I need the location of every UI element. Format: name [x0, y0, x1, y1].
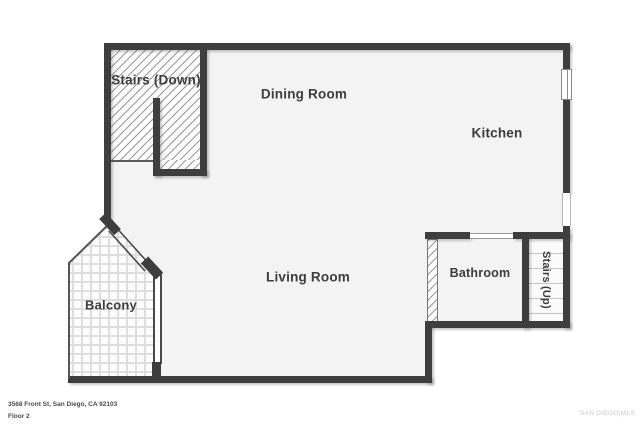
mls-watermark: SAN DIEGO|MLS: [580, 410, 635, 417]
right-wall-opening: [562, 193, 571, 226]
balcony-wall-post: [152, 362, 161, 378]
stairs-down-edge-line: [111, 160, 153, 162]
floor-plan: Stairs (Down) Dining Room Kitchen Living…: [0, 0, 640, 427]
wall-right-lower: [563, 226, 570, 328]
wall-living-notch: [425, 321, 432, 383]
balcony-label: Balcony: [85, 298, 137, 313]
wall-top: [104, 43, 570, 50]
wall-right-middle: [563, 97, 570, 193]
wall-stairs-down-inner: [153, 98, 160, 176]
address-text: 3568 Front St, San Diego, CA 92103: [8, 401, 117, 408]
wall-stairs-up-left: [522, 232, 529, 328]
balcony-door-window: [153, 272, 162, 364]
window-mullion: [567, 70, 568, 99]
wall-bathroom-bottom: [425, 321, 570, 328]
kitchen-label: Kitchen: [472, 126, 523, 141]
stairs-up-label: Stairs (Up): [540, 251, 552, 309]
kitchen-window: [561, 69, 572, 100]
wall-left: [104, 43, 111, 224]
bathroom-window: [470, 233, 513, 239]
wall-bathroom-top-left: [425, 232, 470, 239]
stairs-up-label-box: Stairs (Up): [529, 239, 563, 321]
wall-right-upper: [563, 43, 570, 70]
stairs-down-label: Stairs (Down): [111, 73, 201, 88]
balcony-left-railing: [68, 262, 70, 378]
wall-stairs-down-right: [200, 43, 207, 176]
dining-room-label: Dining Room: [261, 87, 347, 102]
wall-bottom: [68, 376, 432, 383]
bathroom-hatch-strip: [428, 240, 437, 321]
floor-number-text: Floor 2: [8, 413, 30, 420]
wall-stairs-down-bottom: [153, 169, 207, 176]
living-room-label: Living Room: [266, 270, 350, 285]
bathroom-label: Bathroom: [450, 266, 511, 280]
